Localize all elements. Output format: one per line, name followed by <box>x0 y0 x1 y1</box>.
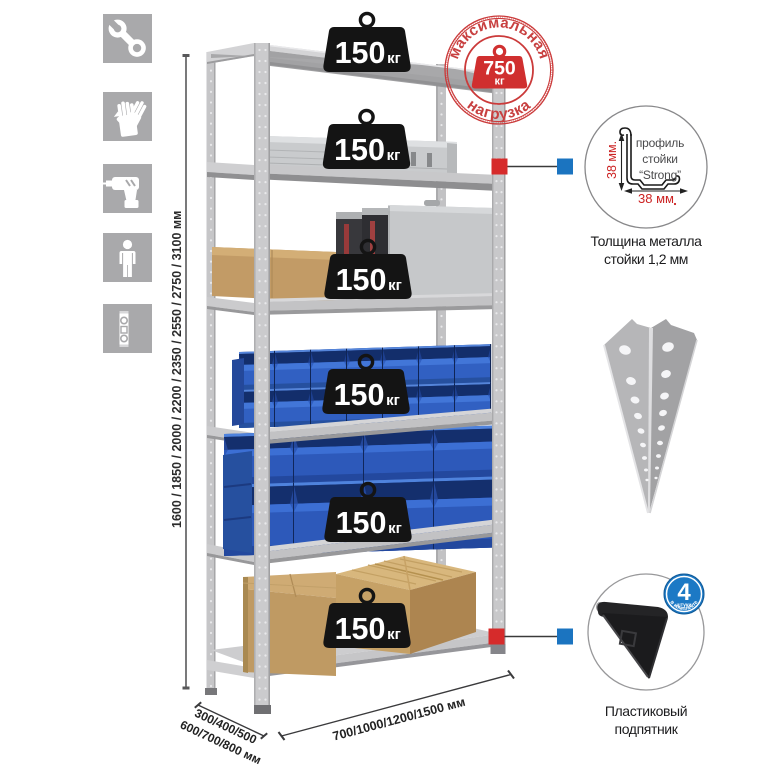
svg-text:Пластиковый: Пластиковый <box>605 703 687 719</box>
svg-text:1600 / 1850 / 2000 / 2200 / 23: 1600 / 1850 / 2000 / 2200 / 2350 / 2550 … <box>170 211 184 528</box>
svg-text:38 мм.: 38 мм. <box>605 141 619 179</box>
svg-text:Толщина металла: Толщина металла <box>591 233 703 249</box>
svg-text:кг: кг <box>494 76 505 88</box>
svg-text:стойки: стойки <box>642 152 678 166</box>
svg-text:стойки 1,2 мм: стойки 1,2 мм <box>604 251 688 267</box>
svg-text:профиль: профиль <box>636 136 684 150</box>
svg-text:38 мм: 38 мм <box>638 191 674 206</box>
svg-text:подпятник: подпятник <box>615 721 679 737</box>
svg-text:“Strong”: “Strong” <box>639 168 681 182</box>
